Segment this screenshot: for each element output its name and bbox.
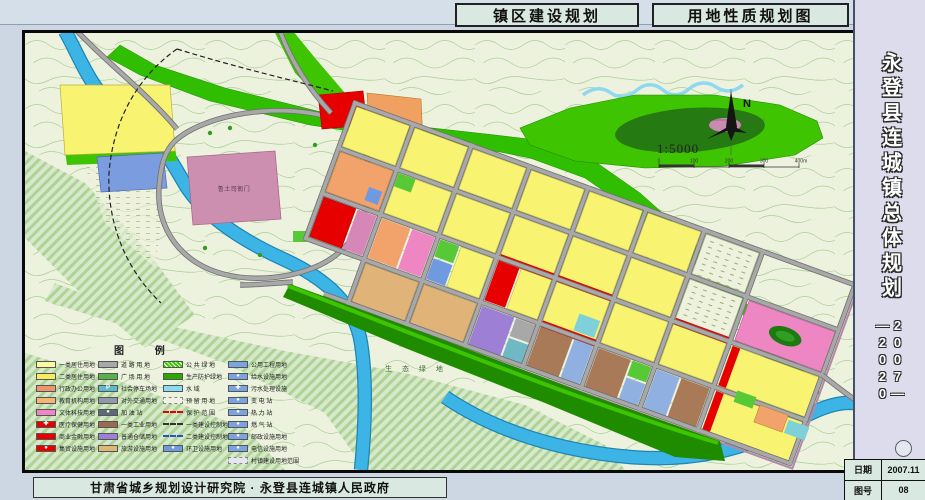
series-title-text: 镇区建设规划 xyxy=(493,5,601,26)
eco-green-label: 生 态 绿 地 xyxy=(385,364,447,373)
date-value: 2007.11 xyxy=(882,460,925,480)
plan-period-start: 2007— xyxy=(890,318,905,403)
svg-text:200: 200 xyxy=(725,159,734,165)
sheet-series-title: 镇区建设规划 xyxy=(455,3,639,27)
sheet-number-value: 08 xyxy=(882,481,925,500)
svg-text:300: 300 xyxy=(760,159,769,165)
seal-icon xyxy=(895,440,912,457)
tree-icon xyxy=(258,253,262,257)
date-label: 日期 xyxy=(845,460,881,480)
map-svg: N 1:5000 0 100 200 300 400m 鲁土司衙门 生 态 绿 … xyxy=(25,33,854,470)
credit-text: 甘肃省城乡规划设计研究院 · 永登县连城镇人民政府 xyxy=(90,479,390,496)
scale-ratio: 1:5000 xyxy=(657,141,699,156)
compass-north-label: N xyxy=(743,98,751,110)
svg-text:0: 0 xyxy=(658,159,661,165)
plan-period-end: —2020 xyxy=(875,318,890,403)
heritage-label: 鲁土司衙门 xyxy=(218,185,251,193)
tree-icon xyxy=(228,126,232,130)
sidebar: 永登县连城镇总体规划 2007— —2020 xyxy=(853,0,925,500)
info-table: 日期 2007.11 图号 08 xyxy=(844,459,925,500)
svg-text:100: 100 xyxy=(690,159,699,165)
svg-text:400m: 400m xyxy=(795,159,808,165)
plan-sheet: 镇区建设规划 用地性质规划图 xyxy=(0,0,925,500)
tree-icon xyxy=(313,143,317,147)
plan-title-vertical: 永登县连城镇总体规划 xyxy=(876,52,905,302)
credit-box: 甘肃省城乡规划设计研究院 · 永登县连城镇人民政府 xyxy=(33,477,447,498)
plan-period: 2007— —2020 xyxy=(875,318,905,403)
map-canvas: N 1:5000 0 100 200 300 400m 鲁土司衙门 生 态 绿 … xyxy=(22,30,857,473)
residential-parcel-west xyxy=(60,85,175,155)
tree-icon xyxy=(203,246,207,250)
sheet-name-text: 用地性质规划图 xyxy=(687,5,813,26)
tree-icon xyxy=(208,131,212,135)
sheet-name-title: 用地性质规划图 xyxy=(652,3,849,27)
sheet-number-label: 图号 xyxy=(845,481,881,500)
